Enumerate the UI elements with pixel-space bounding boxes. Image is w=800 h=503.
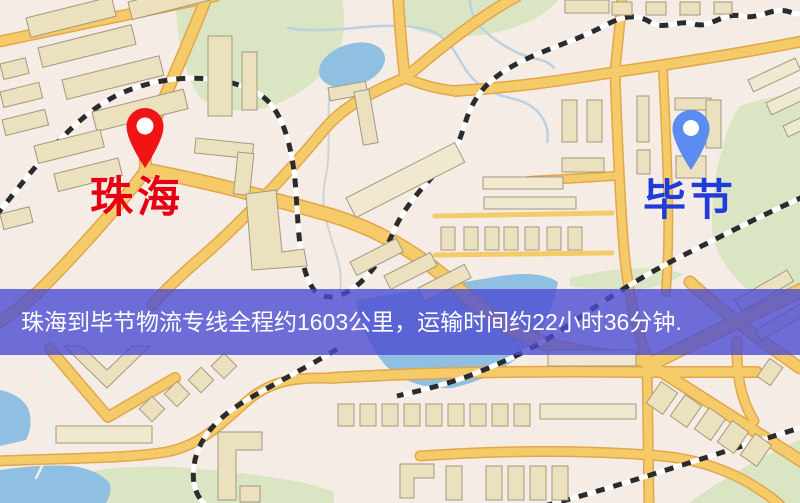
destination-pin-icon[interactable] bbox=[668, 106, 714, 172]
map-canvas bbox=[0, 0, 800, 503]
origin-pin-icon[interactable] bbox=[122, 104, 168, 170]
origin-city-label: 珠海 bbox=[90, 177, 184, 220]
origin-pin-shape bbox=[127, 108, 164, 168]
route-info-banner: 珠海到毕节物流专线全程约1603公里，运输时间约22小时36分钟. bbox=[0, 289, 800, 355]
destination-pin-shape bbox=[673, 110, 710, 170]
route-map[interactable]: 珠海 毕节 珠海到毕节物流专线全程约1603公里，运输时间约22小时36分钟. bbox=[0, 0, 800, 503]
destination-city-label: 毕节 bbox=[643, 180, 737, 223]
route-info-text: 珠海到毕节物流专线全程约1603公里，运输时间约22小时36分钟. bbox=[0, 289, 800, 355]
